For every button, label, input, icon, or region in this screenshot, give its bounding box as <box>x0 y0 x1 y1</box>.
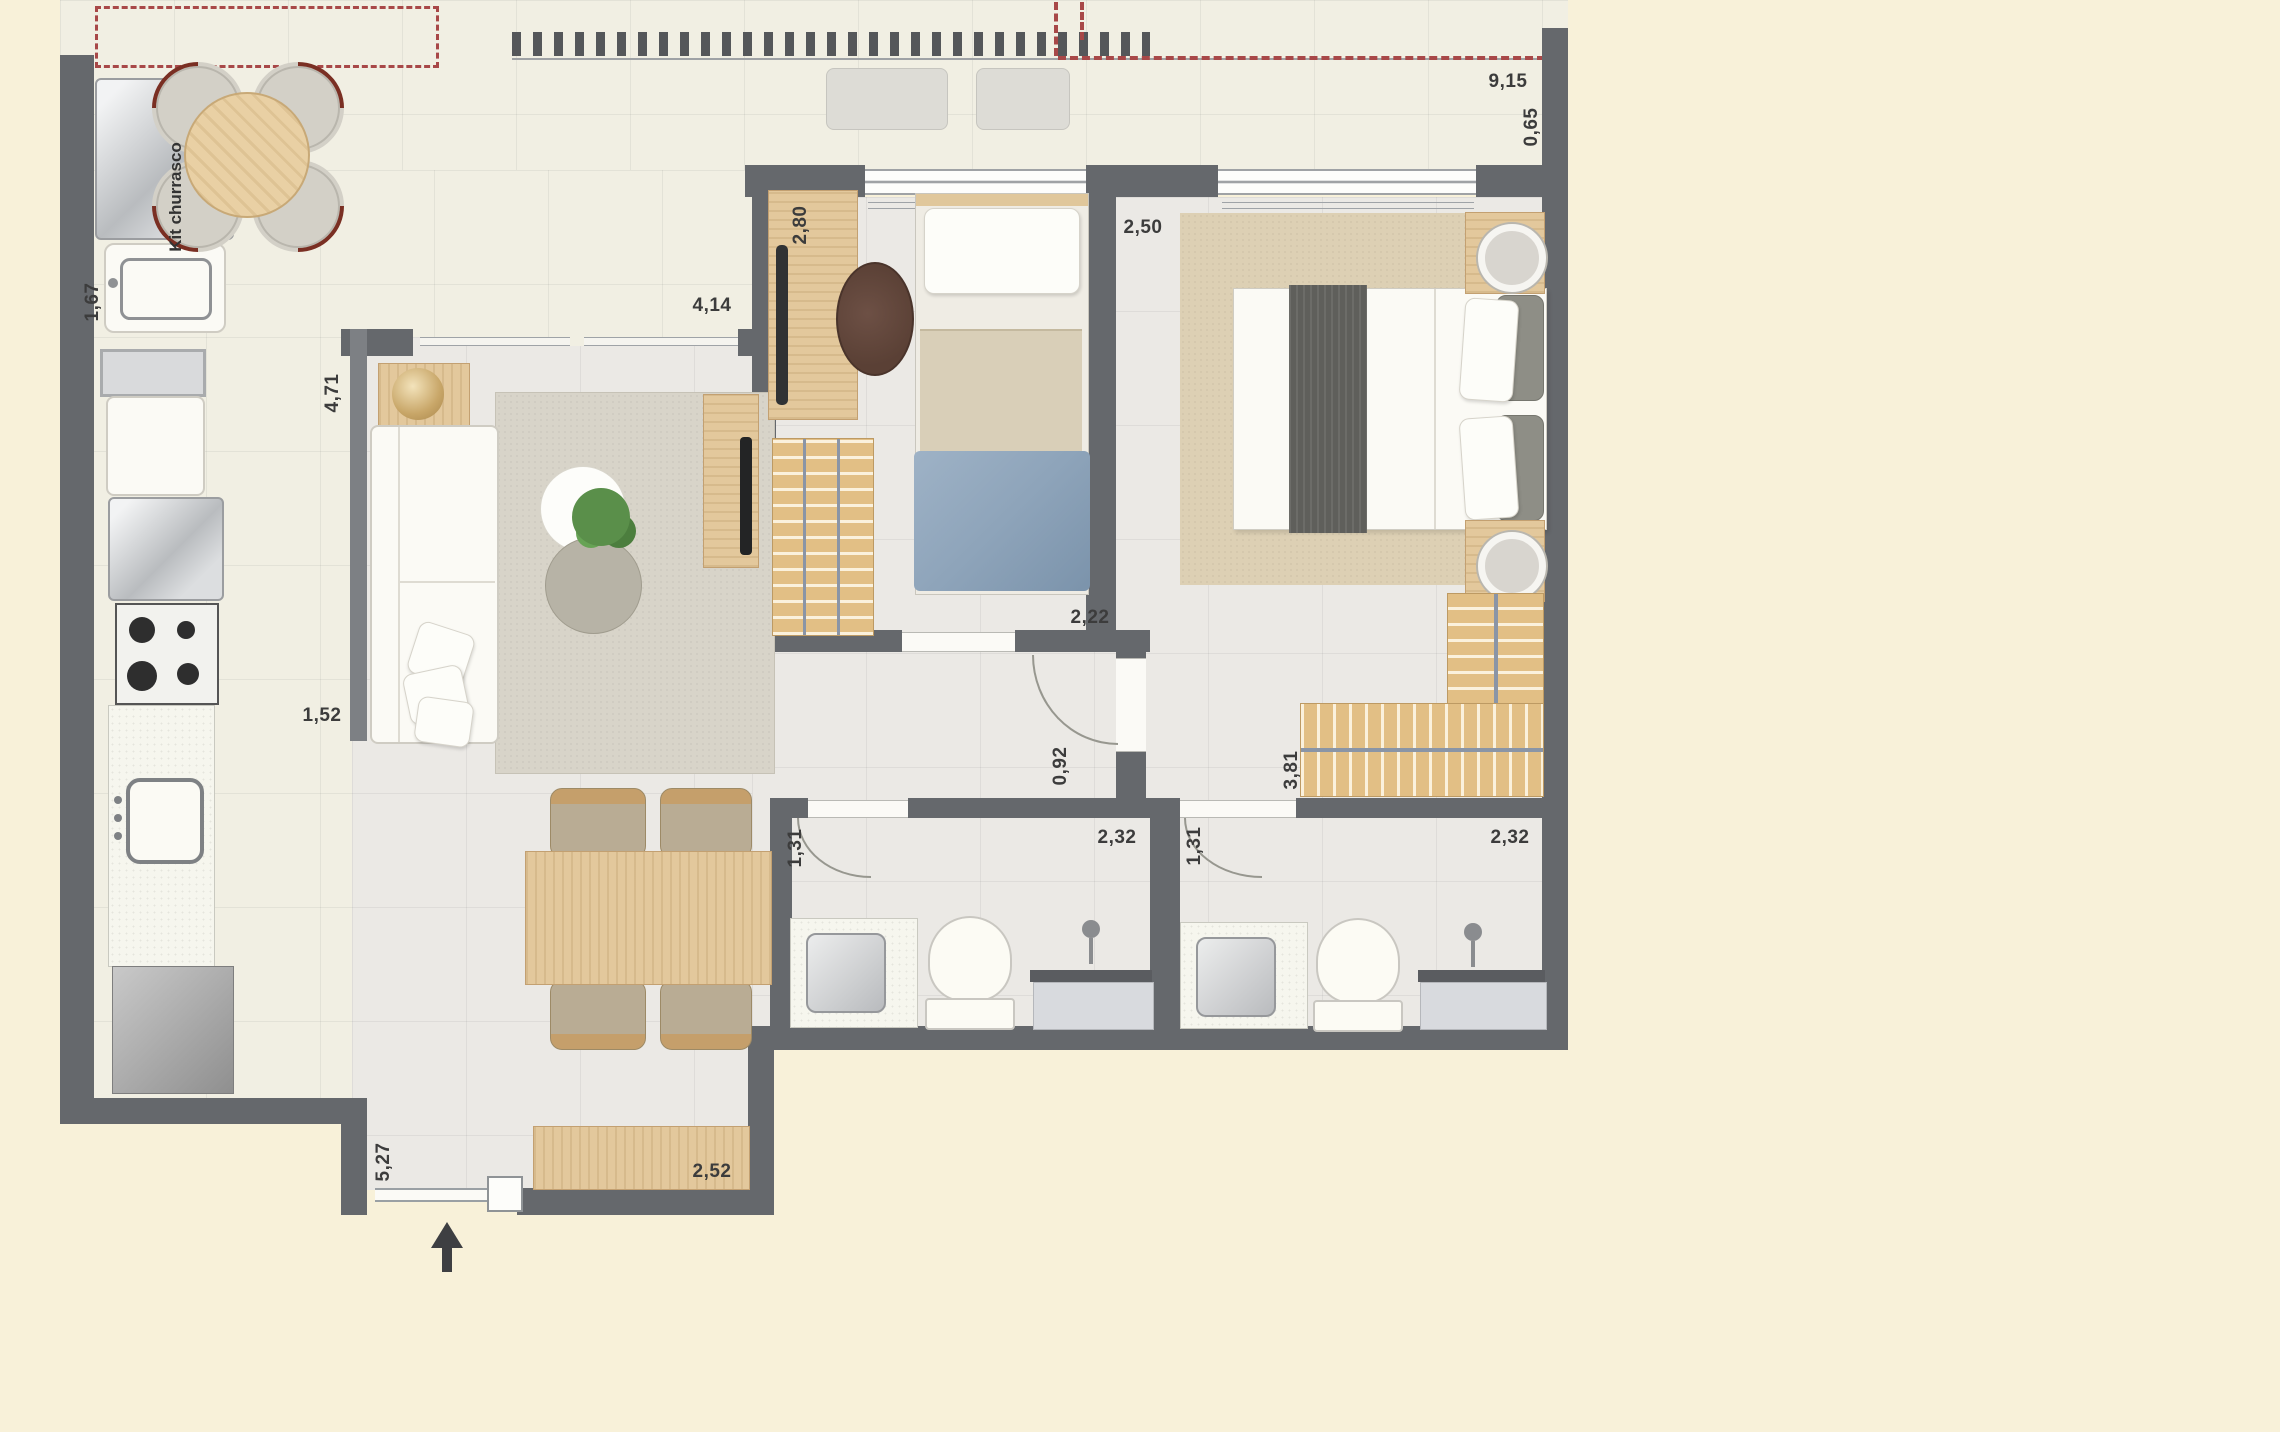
dim-sideboard-length: 2,52 <box>693 1161 732 1183</box>
single-bed-sheet <box>920 329 1082 455</box>
sofa-backrest <box>372 427 400 742</box>
dim-bath2-width: 1,31 <box>1184 827 1206 866</box>
wall-bottom-left-vertical <box>341 1098 367 1215</box>
nightstand-lamp-top <box>1478 224 1546 292</box>
dining-chair-1 <box>550 788 646 858</box>
dim-wardrobe-length: 3,81 <box>1281 751 1303 790</box>
dim-hall-width: 0,92 <box>1050 747 1072 786</box>
dresser-line-1 <box>803 439 806 635</box>
bedroom1-window <box>1218 169 1476 195</box>
wall-bath2-top <box>1296 798 1566 818</box>
master-bed-throw <box>1289 285 1367 533</box>
sofa <box>370 425 499 744</box>
stove-burner-4 <box>177 663 199 685</box>
coffee-table-ottoman <box>545 537 642 634</box>
single-bed-pillow <box>924 208 1080 294</box>
living-lamp <box>392 368 444 420</box>
bath2-shower-tray <box>1420 982 1547 1030</box>
dining-table <box>525 851 772 985</box>
projection-dash-vertical-2 <box>1080 2 1084 40</box>
dim-grill-width: 1,67 <box>82 283 104 322</box>
plant <box>572 488 630 546</box>
dim-dining-length: 5,27 <box>373 1143 395 1182</box>
bath2-toilet-bowl <box>1316 918 1400 1004</box>
dim-bedroom2-length: 2,80 <box>790 206 812 245</box>
kitchen-pass-through <box>100 349 206 397</box>
single-bed-headboard <box>916 194 1088 206</box>
master-pillow-2 <box>1459 415 1520 521</box>
projection-dashed-rect <box>95 6 439 68</box>
bath2-door <box>1180 800 1296 818</box>
kitchen-faucet-2 <box>114 814 122 822</box>
balcony-sink-basin <box>120 258 212 320</box>
bath1-shower-head <box>1082 920 1100 938</box>
bath1-basin <box>806 933 886 1013</box>
bath2-shower-stem <box>1471 941 1475 967</box>
facade-planter-1 <box>826 68 948 130</box>
nightstand-lamp-bottom <box>1478 532 1546 600</box>
dim-living-width: 4,14 <box>693 295 732 317</box>
stove-burner-2 <box>177 621 195 639</box>
kitchen-fridge <box>108 497 224 601</box>
dim-living-width2: 1,52 <box>303 705 342 727</box>
bath1-shower-screen <box>1030 970 1152 982</box>
dim-bath2-length: 2,32 <box>1491 827 1530 849</box>
projection-dashed-line <box>1058 56 1545 60</box>
entry-arrow-stem <box>442 1246 452 1272</box>
kit-churrasco-label: Kit churrasco <box>166 142 186 252</box>
kitchen-sink <box>126 778 204 864</box>
wall-sofa-partition <box>350 329 367 741</box>
entry-threshold <box>375 1188 489 1202</box>
bath2-shower-screen <box>1418 970 1545 982</box>
dim-bedroom2-width: 2,22 <box>1071 607 1110 629</box>
facade-planter-2 <box>976 68 1070 130</box>
balcony-round-table <box>184 92 310 218</box>
dining-chair-2 <box>660 788 752 858</box>
bedroom2-monitor <box>776 245 788 405</box>
wardrobe-horizontal <box>1300 703 1544 797</box>
bedroom2-dresser <box>772 438 874 636</box>
entry-arrow <box>431 1222 463 1248</box>
sofa-cushion-split <box>398 581 495 583</box>
single-bed <box>915 193 1089 595</box>
dim-living-length: 4,71 <box>322 374 344 413</box>
balcony-sink-faucet <box>108 278 118 288</box>
wall-bottom-left <box>60 1098 367 1124</box>
wall-bedroom-divider <box>1086 165 1116 652</box>
dining-chair-3 <box>550 980 646 1050</box>
bath1-door <box>808 800 908 818</box>
bath1-shower-tray <box>1033 982 1154 1030</box>
dresser-line-2 <box>837 439 840 635</box>
dim-bath1-width: 1,31 <box>785 829 807 868</box>
stove-burner-3 <box>127 661 157 691</box>
wall-top-bedroom1-right <box>1476 165 1568 197</box>
single-bed-blanket <box>914 451 1090 591</box>
dim-bedroom1-width: 2,50 <box>1124 217 1163 239</box>
desk-chair <box>836 262 914 376</box>
wall-dining-right <box>748 1040 774 1215</box>
tv <box>740 437 752 555</box>
sofa-pillow-3 <box>413 695 475 748</box>
wall-bath1-top-b <box>908 798 1180 818</box>
wall-bath-divider <box>1150 798 1180 1038</box>
projection-dash-vertical-1 <box>1054 2 1058 56</box>
wall-bottom-entry <box>517 1188 760 1215</box>
kitchen-stove <box>115 603 219 705</box>
bath2-toilet-tank <box>1313 1000 1403 1032</box>
dim-balcony-depth: 0,65 <box>1521 108 1543 147</box>
bedroom2-window <box>865 169 1090 195</box>
wall-left-outer <box>60 55 94 1115</box>
bedroom1-door-gap <box>1116 658 1146 752</box>
bedroom2-sliding-door <box>902 632 1015 652</box>
bath2-shower-head <box>1464 923 1482 941</box>
wall-bedroom2-bottom-b <box>1015 630 1150 652</box>
bath1-toilet-tank <box>925 998 1015 1030</box>
entry-door-leaf <box>487 1176 523 1212</box>
kitchen-faucet-1 <box>114 796 122 804</box>
master-bed-fold <box>1434 289 1436 529</box>
floorplan-canvas: Kit churrasco 9,15 0,65 1,67 4,71 4,14 2… <box>0 0 2280 1432</box>
wardrobe-rod-horizontal <box>1301 748 1543 752</box>
kitchen-end-cabinet <box>112 966 234 1094</box>
dim-bath1-length: 2,32 <box>1098 827 1137 849</box>
dining-chair-4 <box>660 980 752 1050</box>
kitchen-faucet-3 <box>114 832 122 840</box>
bath1-shower-stem <box>1089 938 1093 964</box>
master-bed <box>1233 288 1547 530</box>
sliding-door-break <box>570 335 584 346</box>
kitchen-appliance <box>106 396 205 496</box>
stove-burner-1 <box>129 617 155 643</box>
wardrobe-vertical <box>1447 593 1544 707</box>
bath2-basin <box>1196 937 1276 1017</box>
master-pillow-1 <box>1459 297 1520 403</box>
bath1-toilet-bowl <box>928 916 1012 1002</box>
bedroom1-window-sill <box>1222 202 1474 209</box>
dim-total-width: 9,15 <box>1489 71 1528 93</box>
wardrobe-rod-vertical <box>1494 594 1498 706</box>
